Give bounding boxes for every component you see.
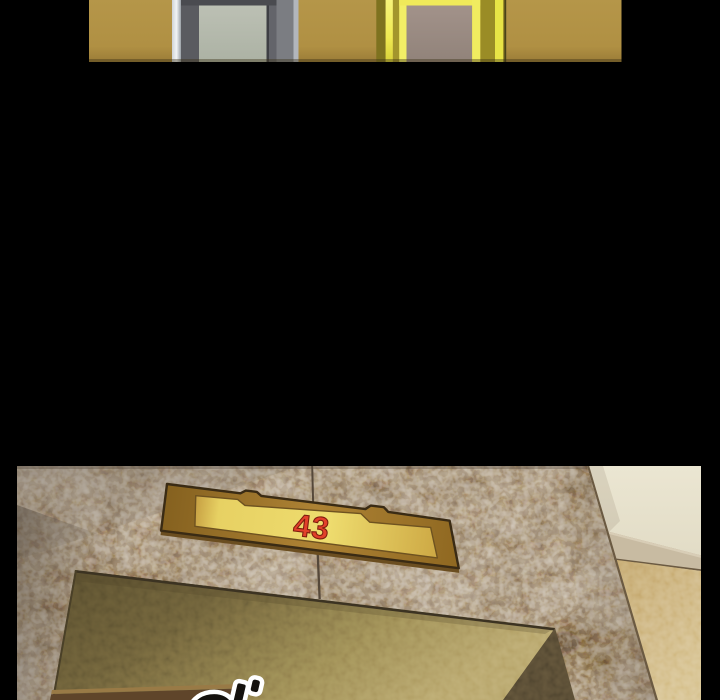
svg-text:43: 43 bbox=[291, 507, 332, 546]
